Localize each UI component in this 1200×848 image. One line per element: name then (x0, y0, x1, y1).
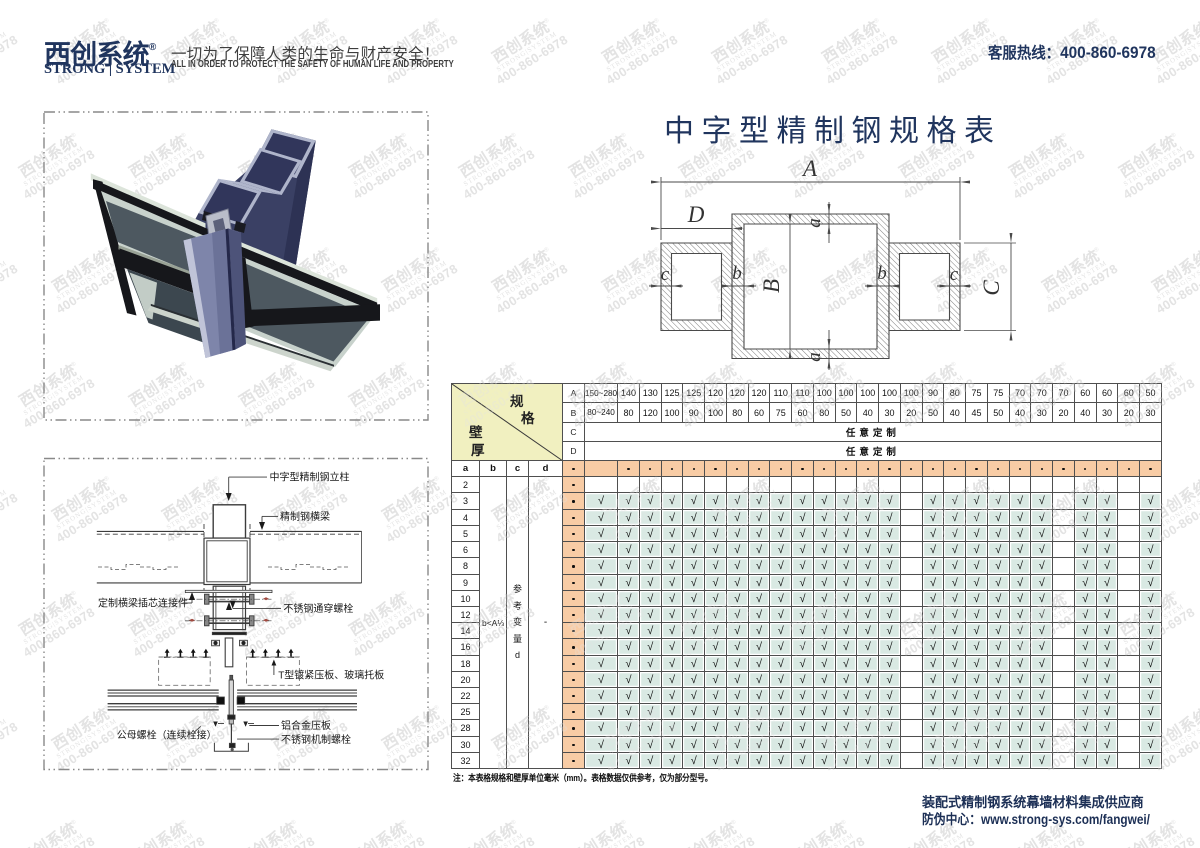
svg-text:不锈钢通穿螺栓: 不锈钢通穿螺栓 (283, 602, 353, 615)
svg-text:C: C (979, 280, 1004, 296)
svg-text:铝合金压板: 铝合金压板 (281, 719, 331, 732)
svg-text:a: a (804, 218, 825, 228)
svg-text:精制钢横梁: 精制钢横梁 (280, 510, 330, 523)
svg-text:b: b (732, 263, 742, 284)
svg-text:不锈钢机制螺栓: 不锈钢机制螺栓 (281, 733, 351, 746)
svg-text:B: B (759, 279, 784, 293)
svg-text:b: b (877, 263, 887, 284)
svg-text:定制横梁插芯连接件: 定制横梁插芯连接件 (98, 597, 188, 610)
svg-text:中字型精制钢立柱: 中字型精制钢立柱 (270, 471, 350, 484)
svg-text:c: c (950, 264, 959, 285)
svg-text:c: c (661, 264, 670, 285)
svg-text:公母螺栓（连续栓接）: 公母螺栓（连续栓接） (117, 729, 217, 742)
svg-text:D: D (687, 202, 705, 227)
svg-text:T型镀紧压板、玻璃托板: T型镀紧压板、玻璃托板 (278, 669, 384, 682)
svg-text:A: A (801, 156, 818, 181)
svg-text:a: a (804, 352, 825, 362)
